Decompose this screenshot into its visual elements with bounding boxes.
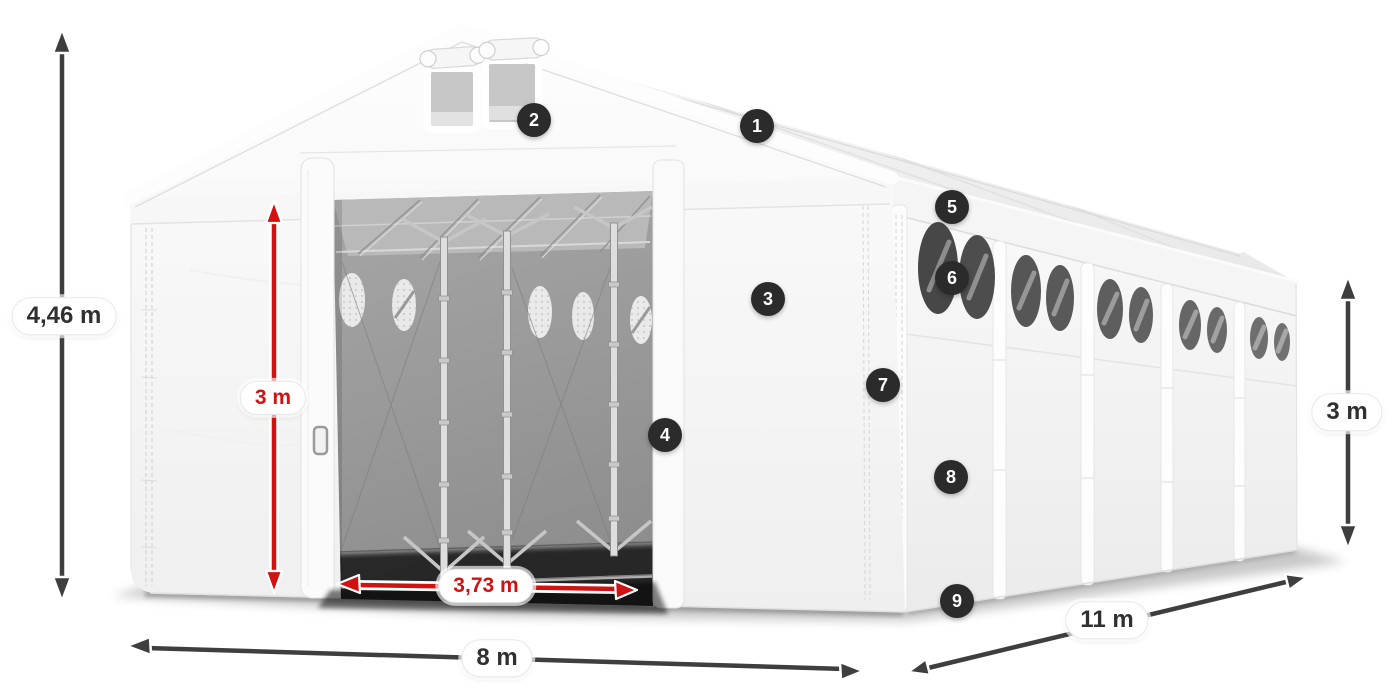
total-height-label: 4,46 m: [12, 297, 117, 335]
callout-badge-3: 3: [751, 282, 785, 316]
callout-badge-5: 5: [935, 190, 969, 224]
callout-badge-9: 9: [940, 584, 974, 618]
side-wall: [892, 178, 1297, 612]
callout-badge-1: 1: [740, 109, 774, 143]
door-opening: [330, 191, 656, 610]
callout-badge-6: 6: [935, 261, 969, 295]
door-height-label: 3 m: [240, 381, 306, 415]
door-handle: [314, 427, 327, 454]
door-post-right: [653, 160, 684, 608]
gable-window-left: [419, 46, 486, 132]
door-panel-edge: [301, 158, 334, 598]
callout-badge-2: 2: [517, 103, 551, 137]
callout-badge-7: 7: [866, 368, 900, 402]
side-height-label: 3 m: [1311, 393, 1382, 431]
side-length-label: 11 m: [1065, 601, 1148, 639]
callout-badge-8: 8: [934, 460, 968, 494]
tent-dimensions-diagram: 4,46 m 3 m 3,73 m 8 m 11 m 3 m 1 2 3 4 5…: [0, 0, 1400, 700]
window-roller: [479, 37, 550, 61]
front-width-label: 8 m: [461, 639, 532, 677]
callout-badge-4: 4: [648, 418, 682, 452]
tent-illustration: [0, 0, 1400, 700]
door-width-label: 3,73 m: [438, 569, 533, 603]
